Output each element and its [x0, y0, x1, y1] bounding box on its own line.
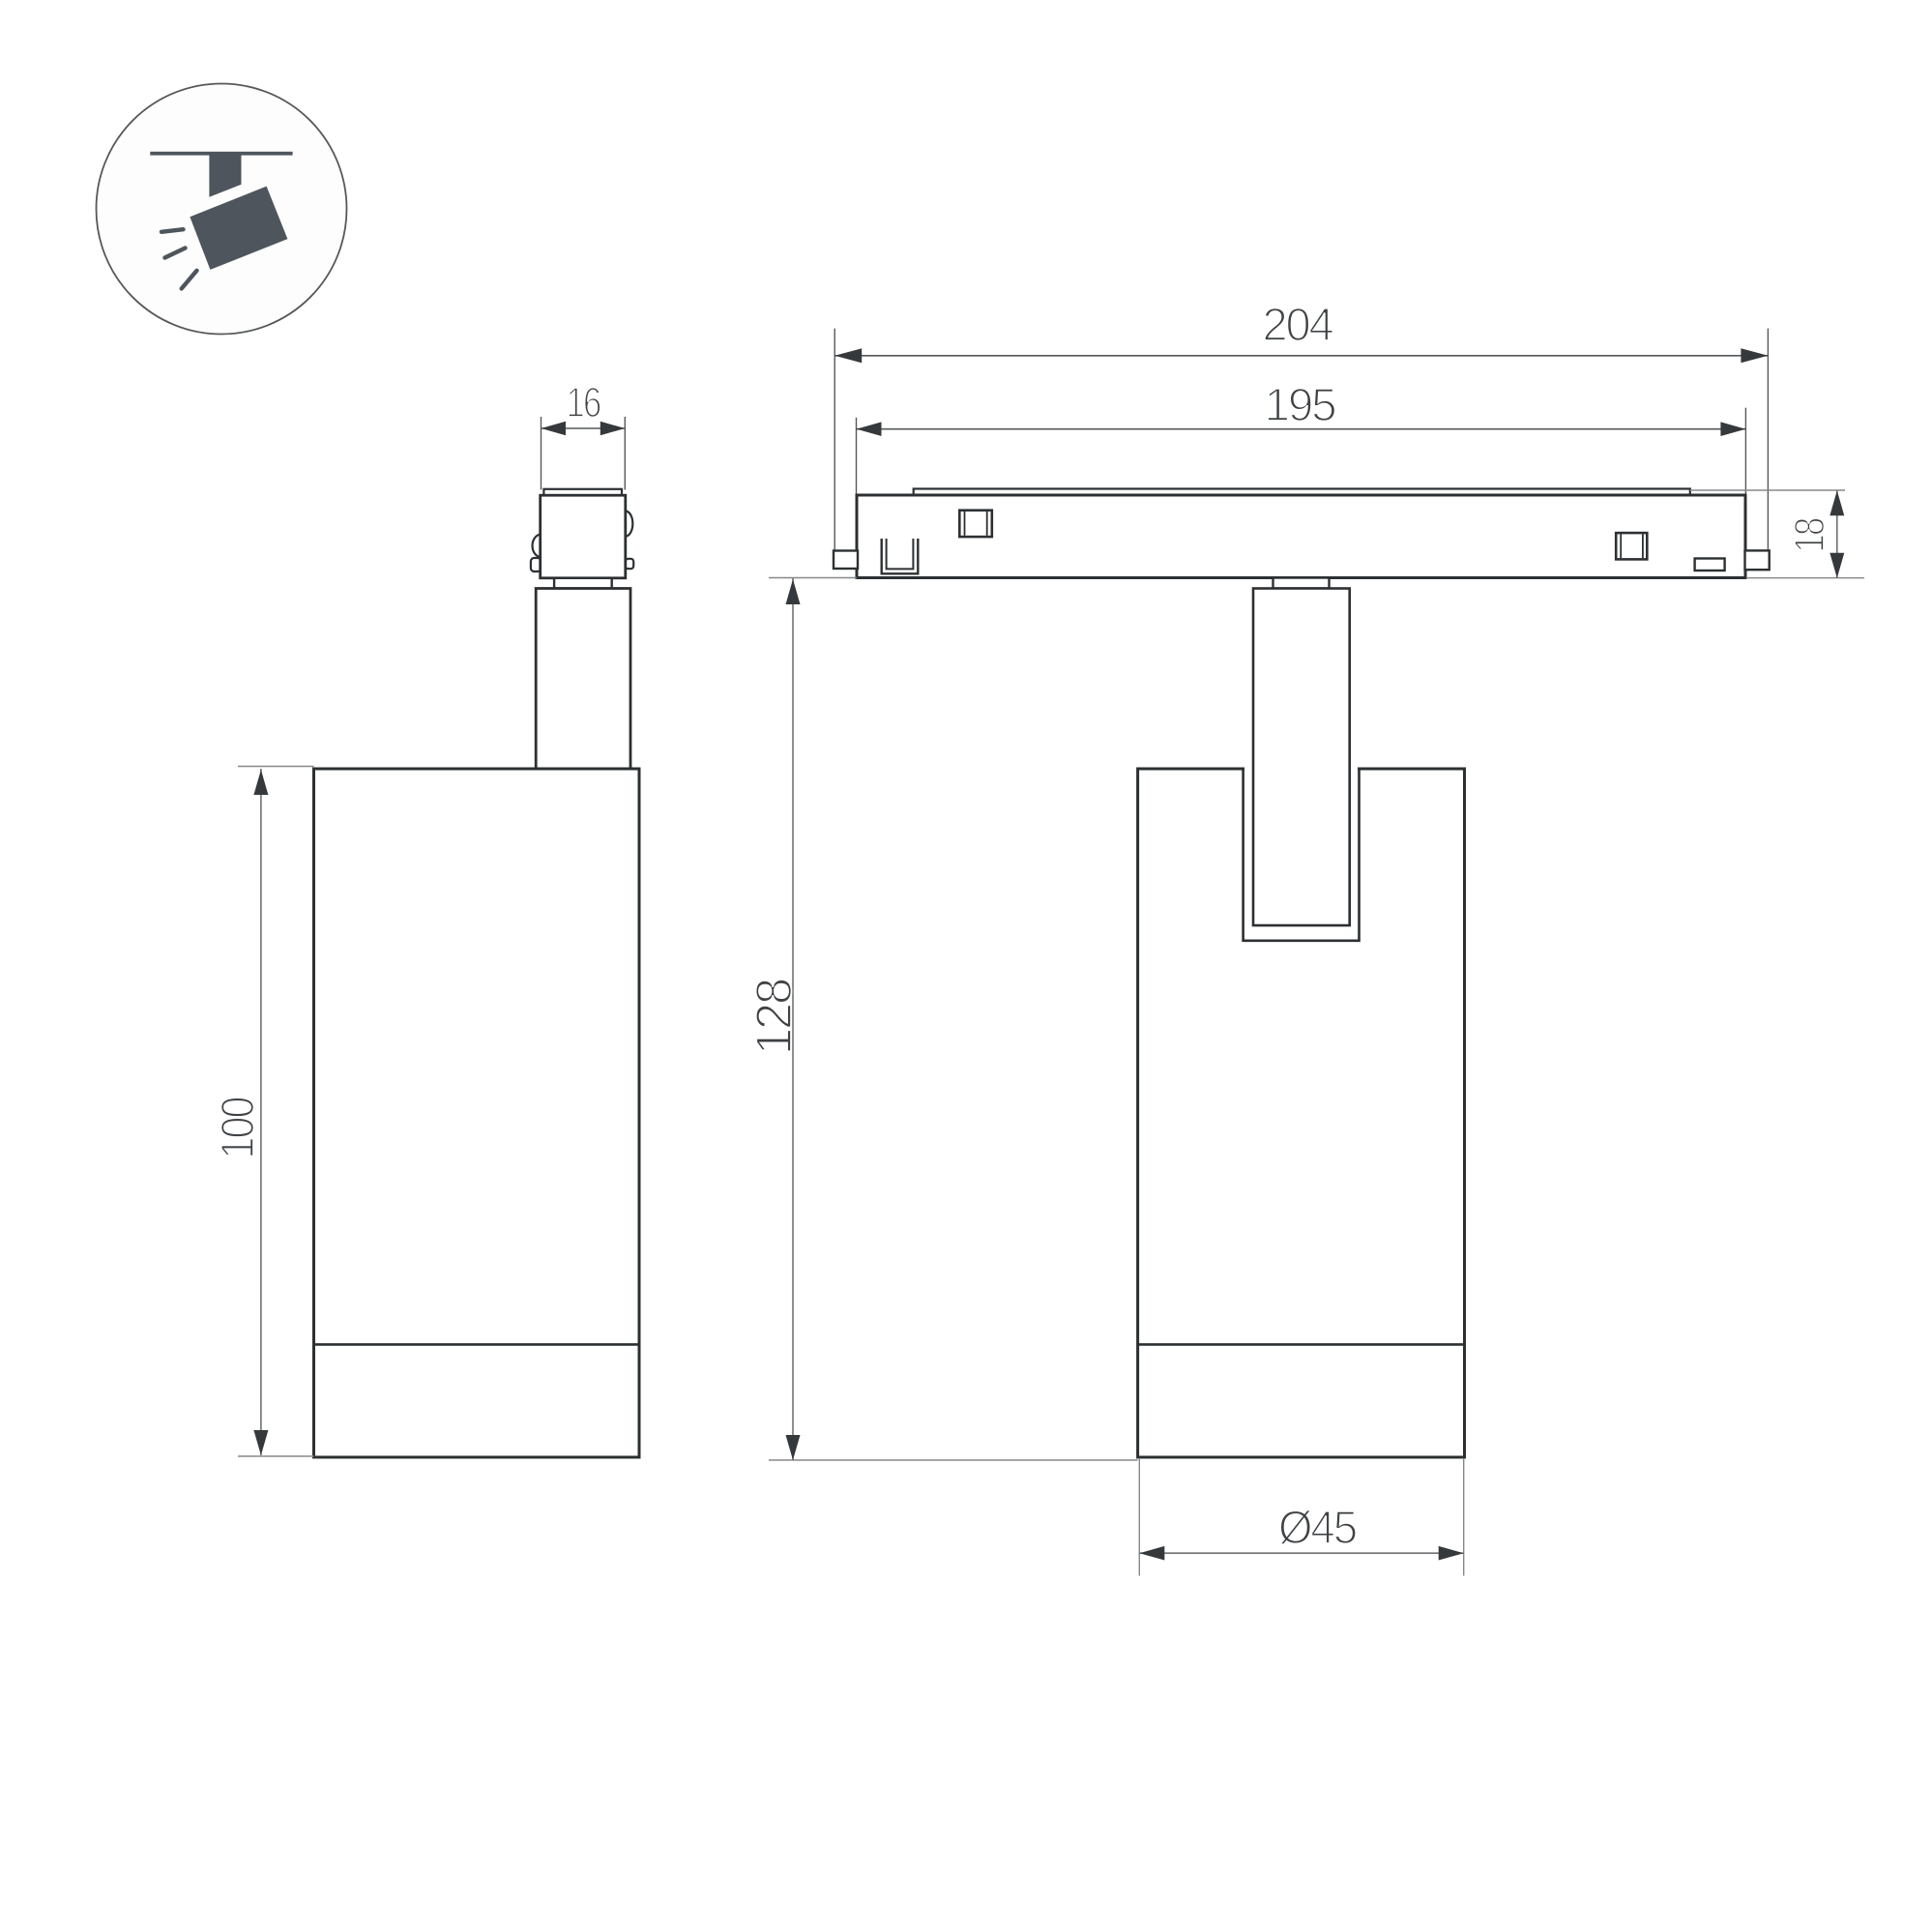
svg-text:16: 16 — [567, 379, 601, 426]
svg-text:128: 128 — [746, 980, 803, 1055]
svg-text:Ø45: Ø45 — [1278, 1503, 1356, 1554]
svg-text:204: 204 — [1263, 300, 1333, 351]
svg-text:18: 18 — [1786, 518, 1833, 553]
svg-text:100: 100 — [213, 1098, 264, 1158]
svg-text:195: 195 — [1265, 380, 1335, 431]
